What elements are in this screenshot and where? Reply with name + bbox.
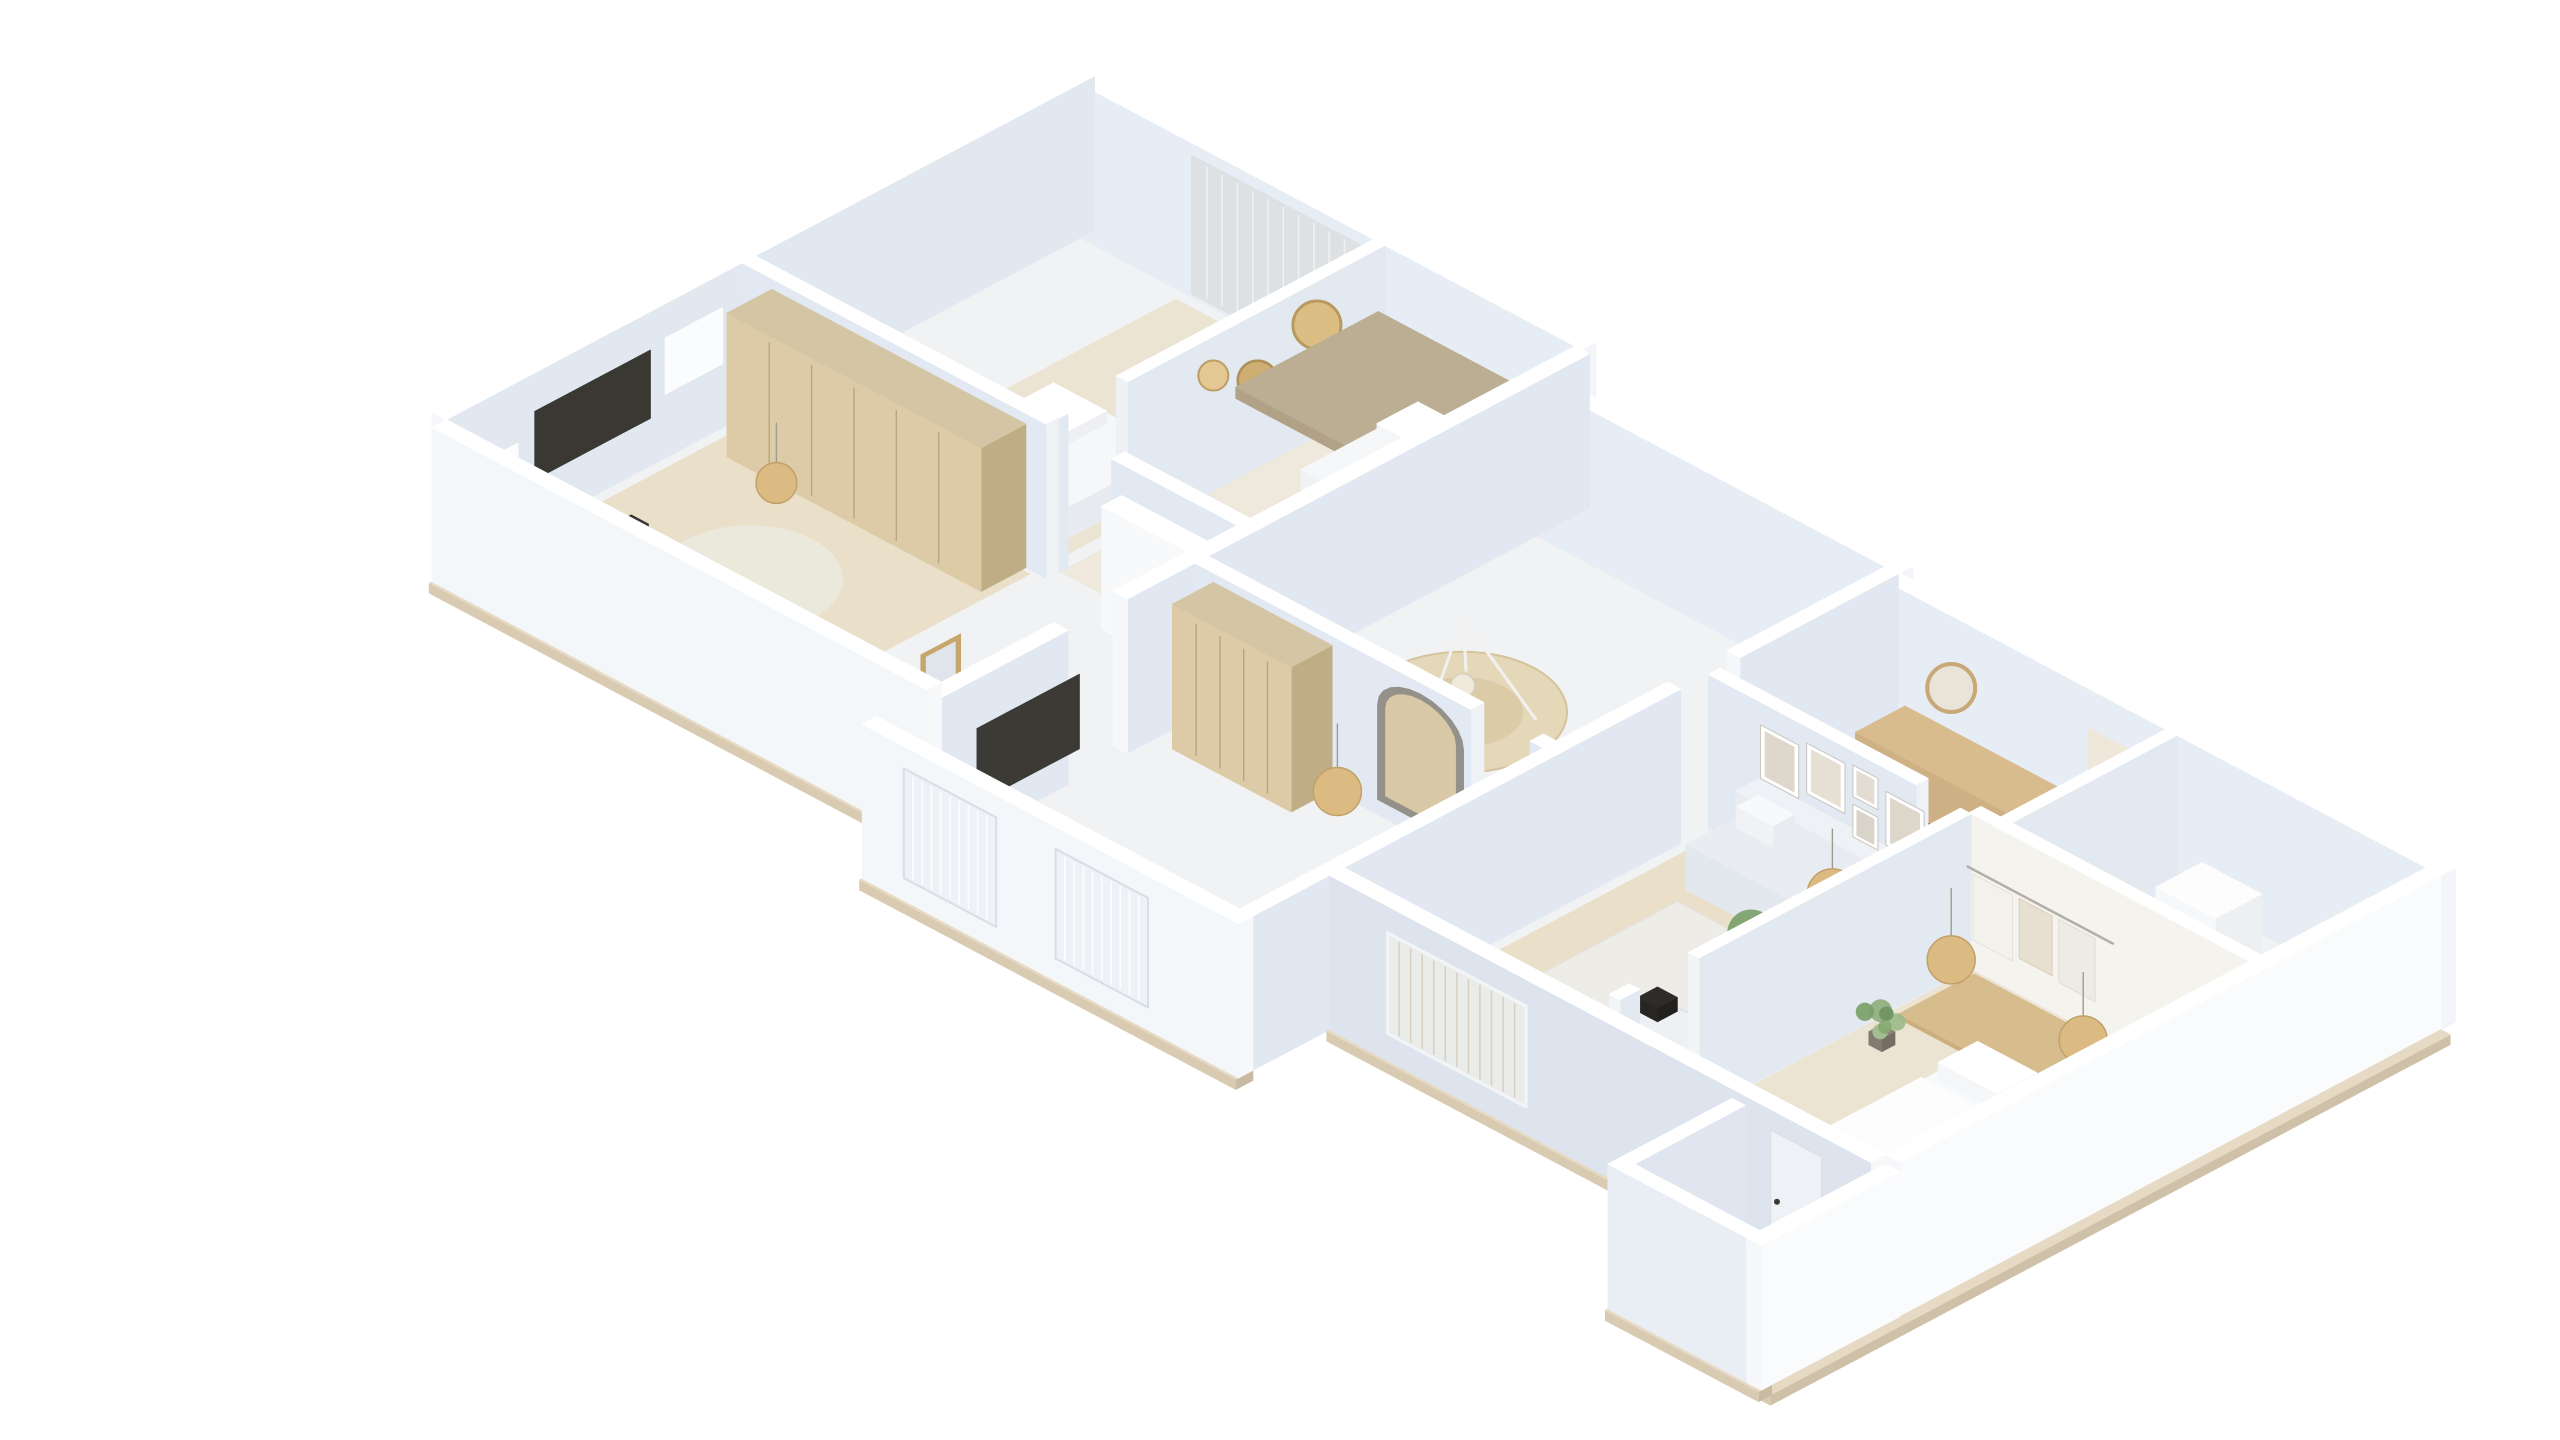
- pendant-mid-wing: [1313, 768, 1361, 816]
- wall-kids-room-back-a: [1046, 417, 1059, 578]
- door-handle: [1774, 1199, 1780, 1205]
- wall-divider-bedrooms-b: [1058, 413, 1068, 573]
- isometric-scene: [0, 0, 2560, 1440]
- wall-back-right-wing: [2441, 868, 2456, 1030]
- pendant-kids-room: [756, 463, 797, 504]
- wall-basket-small: [1198, 361, 1228, 391]
- plant-bedroom: [1879, 1006, 1894, 1021]
- plant-bedroom: [1856, 1003, 1874, 1021]
- wall-divider-left-mid-a: [1113, 591, 1128, 753]
- floorplan-3d-render: [0, 0, 2560, 1440]
- plant-bedroom: [1878, 1020, 1892, 1034]
- wardrobe-left-wing: [981, 424, 1026, 591]
- porch-wall-right: [1747, 1238, 1762, 1391]
- pendant-bedroom-left: [1927, 936, 1975, 984]
- mirror-bathroom-round: [1927, 664, 1975, 712]
- wall-front-mid-wing: [1238, 916, 1253, 1078]
